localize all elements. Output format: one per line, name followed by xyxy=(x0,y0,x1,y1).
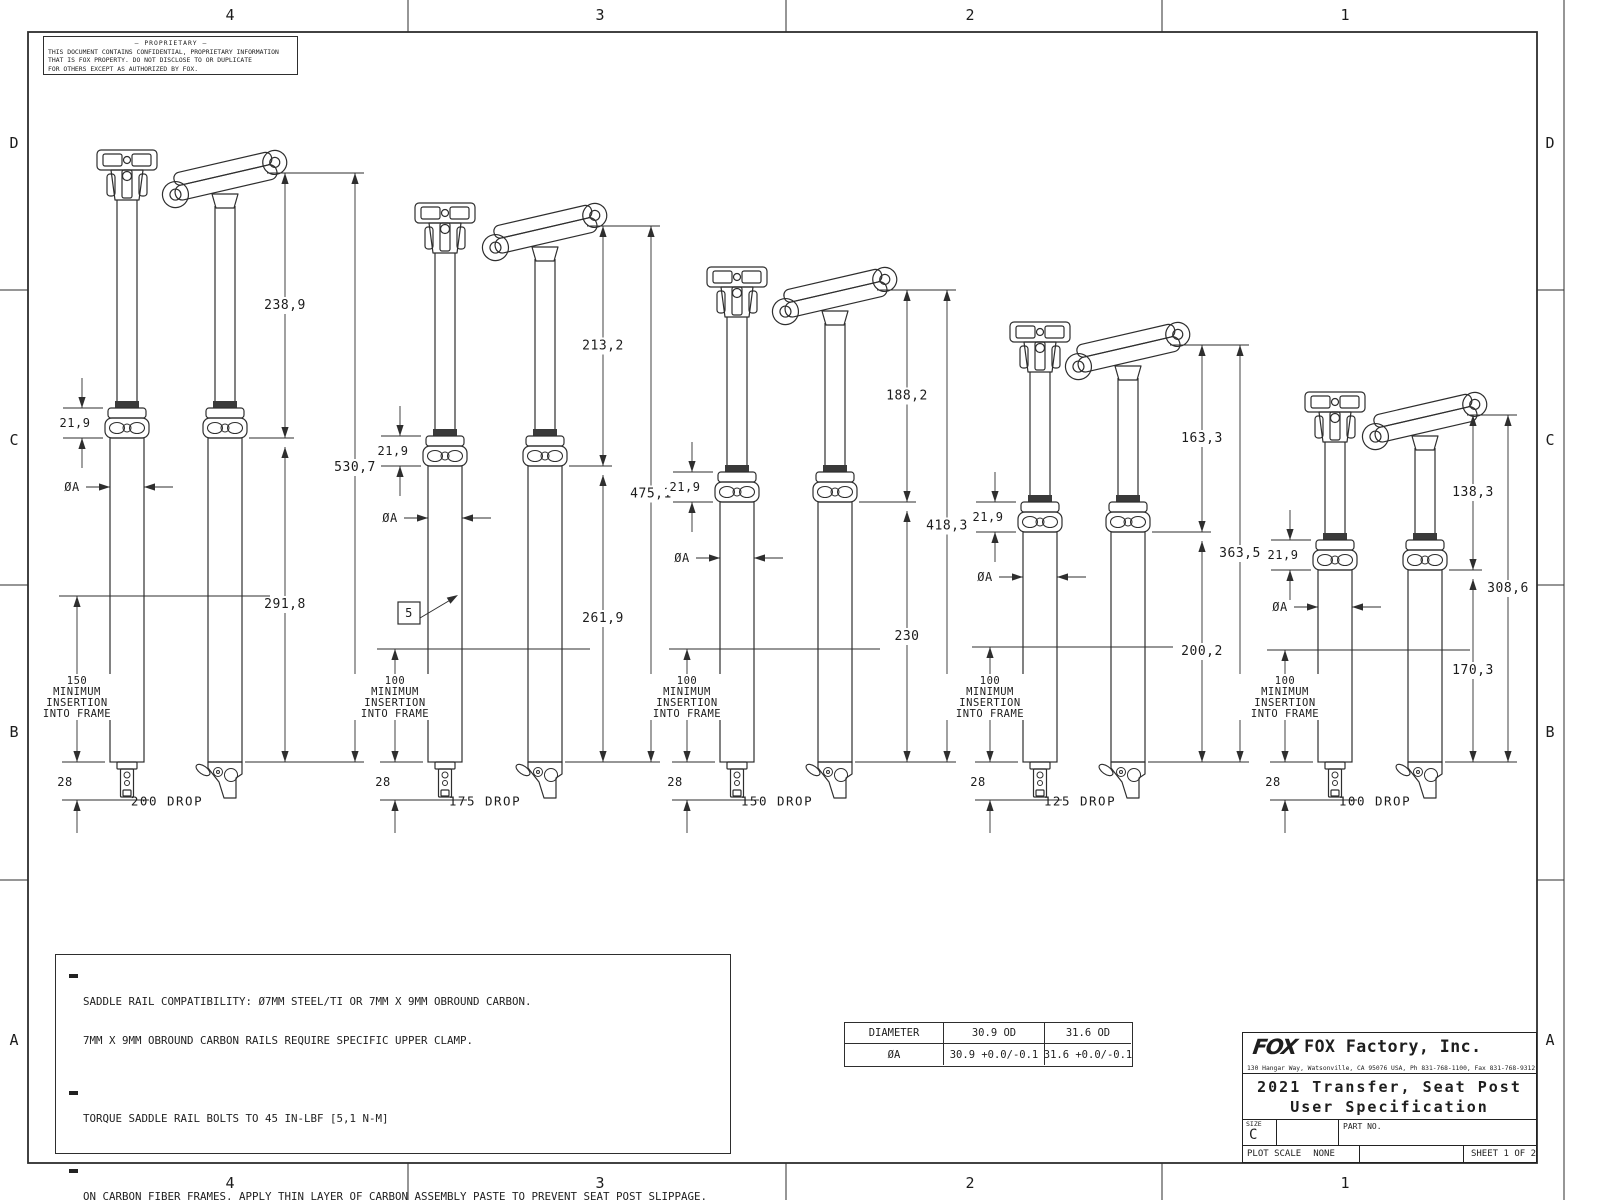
size-value: C xyxy=(1249,1128,1276,1143)
post-group-125-drop: 163,3200,2363,521,9ØA100MINIMUMINSERTION… xyxy=(944,320,1264,833)
part-no-cell: PART NO. xyxy=(1339,1120,1536,1145)
zone-label-right: D xyxy=(1545,134,1554,152)
post-dimensions: 163,3200,2363,521,9ØA100MINIMUMINSERTION… xyxy=(944,345,1264,833)
dim-lower-length: 230 xyxy=(895,629,920,644)
dim-diameter-label: ØA xyxy=(382,511,398,525)
diameter-table-cell: 31.6 +0.0/-0.1 xyxy=(1045,1044,1131,1065)
dim-tip-length: 28 xyxy=(970,775,985,789)
dim-lower-length: 170,3 xyxy=(1452,663,1494,678)
dim-tip-length: 28 xyxy=(667,775,682,789)
dim-overall-length: 530,7 xyxy=(334,460,376,475)
proprietary-line: FOR OTHERS EXCEPT AS AUTHORIZED BY FOX. xyxy=(48,65,294,74)
zone-label-top: 4 xyxy=(225,6,234,24)
drop-label: 200 DROP xyxy=(131,794,203,809)
post-side-view xyxy=(158,148,291,798)
dim-upper-length: 138,3 xyxy=(1452,485,1494,500)
dim-diameter-label: ØA xyxy=(64,480,80,494)
zone-label-right: B xyxy=(1545,723,1554,741)
dim-collar-height: 21,9 xyxy=(378,444,409,458)
dim-upper-length: 163,3 xyxy=(1181,431,1223,446)
drawing-title: 2021 Transfer, Seat Post User Specificat… xyxy=(1243,1073,1536,1119)
size-cell: SIZE C xyxy=(1243,1120,1277,1145)
dim-tip-length: 28 xyxy=(375,775,390,789)
post-side-view xyxy=(768,265,901,798)
note-line: 7MM X 9MM OBROUND CARBON RAILS REQUIRE S… xyxy=(83,1034,532,1047)
zone-label-top: 2 xyxy=(965,6,974,24)
dim-insertion-line: INTO FRAME xyxy=(1251,708,1319,720)
diameter-table-header-cell: DIAMETER xyxy=(845,1023,944,1044)
post-front-view xyxy=(1010,322,1070,797)
note-bullet-icon xyxy=(69,974,78,978)
post-side-view xyxy=(478,201,611,798)
dim-collar-height: 21,9 xyxy=(1268,548,1299,562)
proprietary-title: — PROPRIETARY — xyxy=(48,39,294,48)
post-group-175-drop: 213,2261,9475,121,9ØA100MINIMUMINSERTION… xyxy=(349,201,675,833)
post-dimensions: 213,2261,9475,121,9ØA100MINIMUMINSERTION… xyxy=(349,226,675,833)
dim-collar-height: 21,9 xyxy=(60,416,91,430)
diameter-table-header-cell: 30.9 OD xyxy=(944,1023,1045,1044)
post-group-150-drop: 188,2230418,321,9ØA100MINIMUMINSERTIONIN… xyxy=(641,265,971,833)
note-item: SADDLE RAIL COMPATIBILITY: Ø7MM STEEL/TI… xyxy=(69,969,722,1073)
diameter-table: DIAMETER 30.9 OD 31.6 OD ØA 30.9 +0.0/-0… xyxy=(844,1022,1133,1067)
note-bullet-icon xyxy=(69,1169,78,1173)
note-line: SADDLE RAIL COMPATIBILITY: Ø7MM STEEL/TI… xyxy=(83,995,532,1008)
plot-scale-label: PLOT SCALE xyxy=(1247,1149,1301,1159)
diameter-table-cell: 30.9 +0.0/-0.1 xyxy=(944,1044,1045,1065)
fox-logo: FOX xyxy=(1251,1036,1297,1058)
dim-tip-length: 28 xyxy=(1265,775,1280,789)
proprietary-notice: — PROPRIETARY — THIS DOCUMENT CONTAINS C… xyxy=(43,36,298,75)
dim-diameter-label: ØA xyxy=(977,570,993,584)
zone-label-top: 3 xyxy=(595,6,604,24)
note-line: ON CARBON FIBER FRAMES, APPLY THIN LAYER… xyxy=(83,1190,707,1200)
dim-tip-length: 28 xyxy=(57,775,72,789)
post-group-200-drop: 238,9291,8530,721,9ØA150MINIMUMINSERTION… xyxy=(31,148,379,833)
company-address: 130 Hangar Way, Watsonville, CA 95076 US… xyxy=(1247,1065,1535,1072)
zone-label-right: C xyxy=(1545,431,1554,449)
dim-insertion-line: INTO FRAME xyxy=(361,708,429,720)
post-group-100-drop: 138,3170,3308,621,9ØA100MINIMUMINSERTION… xyxy=(1239,390,1532,833)
zone-label-bottom: 1 xyxy=(1340,1174,1349,1192)
drop-label: 175 DROP xyxy=(449,794,521,809)
drawing-sheet: 44332211DDCCBBAA238,9291,8530,721,9ØA150… xyxy=(0,0,1600,1200)
dim-collar-height: 21,9 xyxy=(670,480,701,494)
drawing-title-line1: 2021 Transfer, Seat Post xyxy=(1243,1077,1536,1097)
post-dimensions: 188,2230418,321,9ØA100MINIMUMINSERTIONIN… xyxy=(641,290,971,833)
zone-label-left: C xyxy=(9,431,18,449)
title-block-company-row: FOX FOX Factory, Inc. 130 Hangar Way, Wa… xyxy=(1243,1033,1536,1073)
post-front-view xyxy=(1305,392,1365,797)
dim-overall-length: 475,1 xyxy=(630,487,672,502)
plot-scale-cell: PLOT SCALE NONE xyxy=(1243,1146,1360,1162)
zone-label-left: D xyxy=(9,134,18,152)
dim-lower-length: 261,9 xyxy=(582,611,624,626)
post-dimensions: 138,3170,3308,621,9ØA100MINIMUMINSERTION… xyxy=(1239,415,1532,833)
dim-overall-length: 308,6 xyxy=(1487,581,1529,596)
dim-insertion-line: INTO FRAME xyxy=(43,708,111,720)
note-line: TORQUE SADDLE RAIL BOLTS TO 45 IN-LBF [5… xyxy=(83,1112,389,1125)
drop-label: 125 DROP xyxy=(1044,794,1116,809)
diameter-table-header-cell: 31.6 OD xyxy=(1045,1023,1131,1044)
dim-upper-length: 213,2 xyxy=(582,339,624,354)
company-name: FOX Factory, Inc. xyxy=(1304,1036,1481,1058)
proprietary-line: THIS DOCUMENT CONTAINS CONFIDENTIAL, PRO… xyxy=(48,48,294,57)
blank-cell xyxy=(1360,1146,1464,1162)
zone-label-left: A xyxy=(9,1031,18,1049)
dim-insertion-line: INTO FRAME xyxy=(653,708,721,720)
note-bullet-icon xyxy=(69,1091,78,1095)
flag-note-number: 5 xyxy=(405,606,413,620)
drop-label: 150 DROP xyxy=(741,794,813,809)
title-block: FOX FOX Factory, Inc. 130 Hangar Way, Wa… xyxy=(1242,1032,1537,1163)
dim-diameter-label: ØA xyxy=(1272,600,1288,614)
dim-upper-length: 238,9 xyxy=(264,298,306,313)
zone-label-left: B xyxy=(9,723,18,741)
plot-scale-value: NONE xyxy=(1313,1149,1335,1159)
dim-diameter-label: ØA xyxy=(674,551,690,565)
dim-collar-height: 21,9 xyxy=(973,510,1004,524)
dim-insertion-line: INTO FRAME xyxy=(956,708,1024,720)
zone-label-right: A xyxy=(1545,1031,1554,1049)
drop-label: 100 DROP xyxy=(1339,794,1411,809)
proprietary-line: THAT IS FOX PROPERTY. DO NOT DISCLOSE TO… xyxy=(48,56,294,65)
dim-overall-length: 363,5 xyxy=(1219,546,1261,561)
note-item: TORQUE SADDLE RAIL BOLTS TO 45 IN-LBF [5… xyxy=(69,1086,722,1151)
dim-lower-length: 291,8 xyxy=(264,597,306,612)
notes-box: SADDLE RAIL COMPATIBILITY: Ø7MM STEEL/TI… xyxy=(55,954,731,1154)
drawing-title-line2: User Specification xyxy=(1243,1097,1536,1117)
post-side-view xyxy=(1061,320,1194,798)
post-side-view xyxy=(1358,390,1491,798)
zone-label-bottom: 2 xyxy=(965,1174,974,1192)
post-dimensions: 238,9291,8530,721,9ØA150MINIMUMINSERTION… xyxy=(31,173,379,833)
zone-label-top: 1 xyxy=(1340,6,1349,24)
note-item: ON CARBON FIBER FRAMES, APPLY THIN LAYER… xyxy=(69,1164,722,1200)
dim-lower-length: 200,2 xyxy=(1181,644,1223,659)
revision-cell xyxy=(1277,1120,1339,1145)
sheet-number-cell: SHEET 1 OF 2 xyxy=(1464,1146,1536,1162)
diameter-table-cell: ØA xyxy=(845,1044,944,1065)
dim-upper-length: 188,2 xyxy=(886,389,928,404)
dim-overall-length: 418,3 xyxy=(926,519,968,534)
